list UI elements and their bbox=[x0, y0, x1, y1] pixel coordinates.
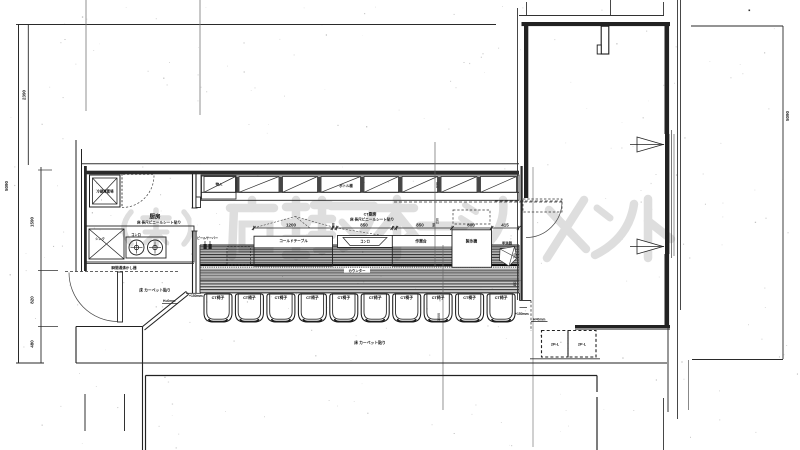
svg-text:コンロ: コンロ bbox=[360, 239, 370, 244]
svg-text:瞬間湯沸かし器: 瞬間湯沸かし器 bbox=[111, 265, 137, 270]
svg-text:手洗器: 手洗器 bbox=[502, 241, 513, 246]
svg-text:CT椅子: CT椅子 bbox=[432, 295, 445, 300]
svg-text:+150mm: +150mm bbox=[515, 312, 529, 316]
svg-text:820: 820 bbox=[30, 296, 35, 304]
svg-text:CT椅子: CT椅子 bbox=[463, 295, 476, 300]
svg-text:1000: 1000 bbox=[437, 313, 441, 321]
svg-text:シンク: シンク bbox=[95, 236, 105, 241]
svg-text:CT椅子: CT椅子 bbox=[212, 295, 225, 300]
svg-text:5090: 5090 bbox=[4, 180, 9, 191]
svg-text:CT椅子: CT椅子 bbox=[306, 295, 319, 300]
svg-text:コールドテーブル: コールドテーブル bbox=[279, 238, 308, 243]
svg-text:CT椅子: CT椅子 bbox=[369, 295, 382, 300]
svg-text:ボトル棚: ボトル棚 bbox=[339, 183, 353, 188]
svg-text:850: 850 bbox=[416, 223, 424, 228]
svg-text:+150mm: +150mm bbox=[189, 294, 203, 298]
svg-text:厨房: 厨房 bbox=[149, 213, 161, 221]
svg-text:90: 90 bbox=[332, 223, 336, 227]
svg-text:コンロ: コンロ bbox=[131, 232, 141, 237]
svg-text:H=0mm: H=0mm bbox=[533, 317, 545, 321]
svg-text:2P-L: 2P-L bbox=[551, 343, 560, 347]
svg-text:850: 850 bbox=[360, 223, 368, 228]
svg-text:1590: 1590 bbox=[30, 216, 35, 227]
svg-text:450: 450 bbox=[513, 281, 517, 287]
svg-text:CT厨房: CT厨房 bbox=[364, 212, 377, 217]
svg-text:2390: 2390 bbox=[22, 89, 27, 100]
svg-text:ビールサーバー: ビールサーバー bbox=[197, 235, 218, 240]
svg-text:600: 600 bbox=[467, 223, 475, 228]
svg-text:5090: 5090 bbox=[785, 110, 790, 121]
svg-text:1200: 1200 bbox=[286, 223, 297, 228]
svg-text:床 カーペット貼り: 床 カーペット貼り bbox=[139, 288, 171, 293]
svg-text:カウンター: カウンター bbox=[349, 268, 367, 273]
svg-text:床 長尺ビニールシート貼り: 床 長尺ビニールシート貼り bbox=[137, 220, 181, 225]
svg-text:製氷機: 製氷機 bbox=[465, 239, 478, 244]
svg-text:CT椅子: CT椅子 bbox=[400, 295, 413, 300]
svg-text:750: 750 bbox=[513, 253, 517, 259]
svg-text:230: 230 bbox=[436, 218, 440, 224]
svg-text:CT椅子: CT椅子 bbox=[275, 295, 288, 300]
svg-text:作業台: 作業台 bbox=[415, 239, 427, 244]
svg-text:CT椅子: CT椅子 bbox=[243, 295, 256, 300]
svg-text:2P-L: 2P-L bbox=[578, 343, 587, 347]
svg-text:930: 930 bbox=[436, 182, 440, 188]
svg-text:480: 480 bbox=[30, 340, 35, 348]
svg-text:床 カーペット貼り: 床 カーペット貼り bbox=[354, 340, 386, 345]
svg-text:415: 415 bbox=[501, 223, 509, 228]
svg-text:冷蔵庫置場: 冷蔵庫置場 bbox=[97, 189, 115, 194]
svg-text:CT椅子: CT椅子 bbox=[495, 295, 508, 300]
svg-text:物入: 物入 bbox=[216, 182, 223, 187]
svg-text:床 長尺ビニールシート貼り: 床 長尺ビニールシート貼り bbox=[350, 217, 394, 222]
svg-text:CT椅子: CT椅子 bbox=[337, 295, 350, 300]
